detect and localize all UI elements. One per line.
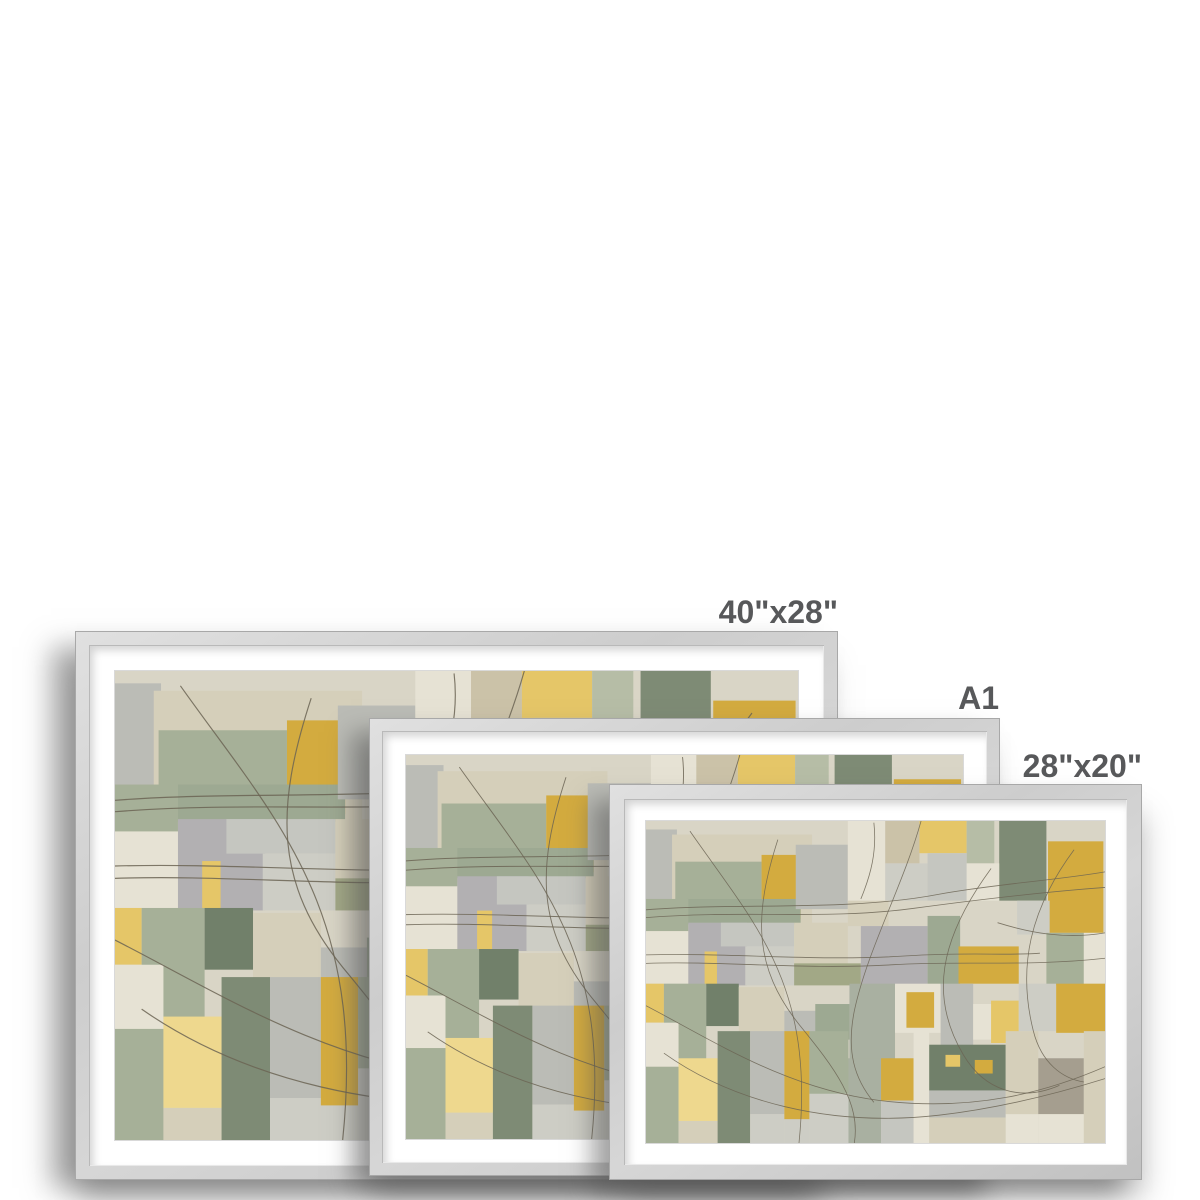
size-label-40x28: 40"x28" (719, 596, 838, 628)
size-label-a1: A1 (958, 682, 999, 714)
framed-print-28x20 (609, 784, 1142, 1180)
size-label-28x20: 28"x20" (1023, 750, 1142, 782)
artwork-28x20 (646, 821, 1105, 1143)
size-comparison-stage: 40"x28" A1 28"x20" (0, 0, 1200, 1200)
mat-28x20 (624, 799, 1127, 1165)
